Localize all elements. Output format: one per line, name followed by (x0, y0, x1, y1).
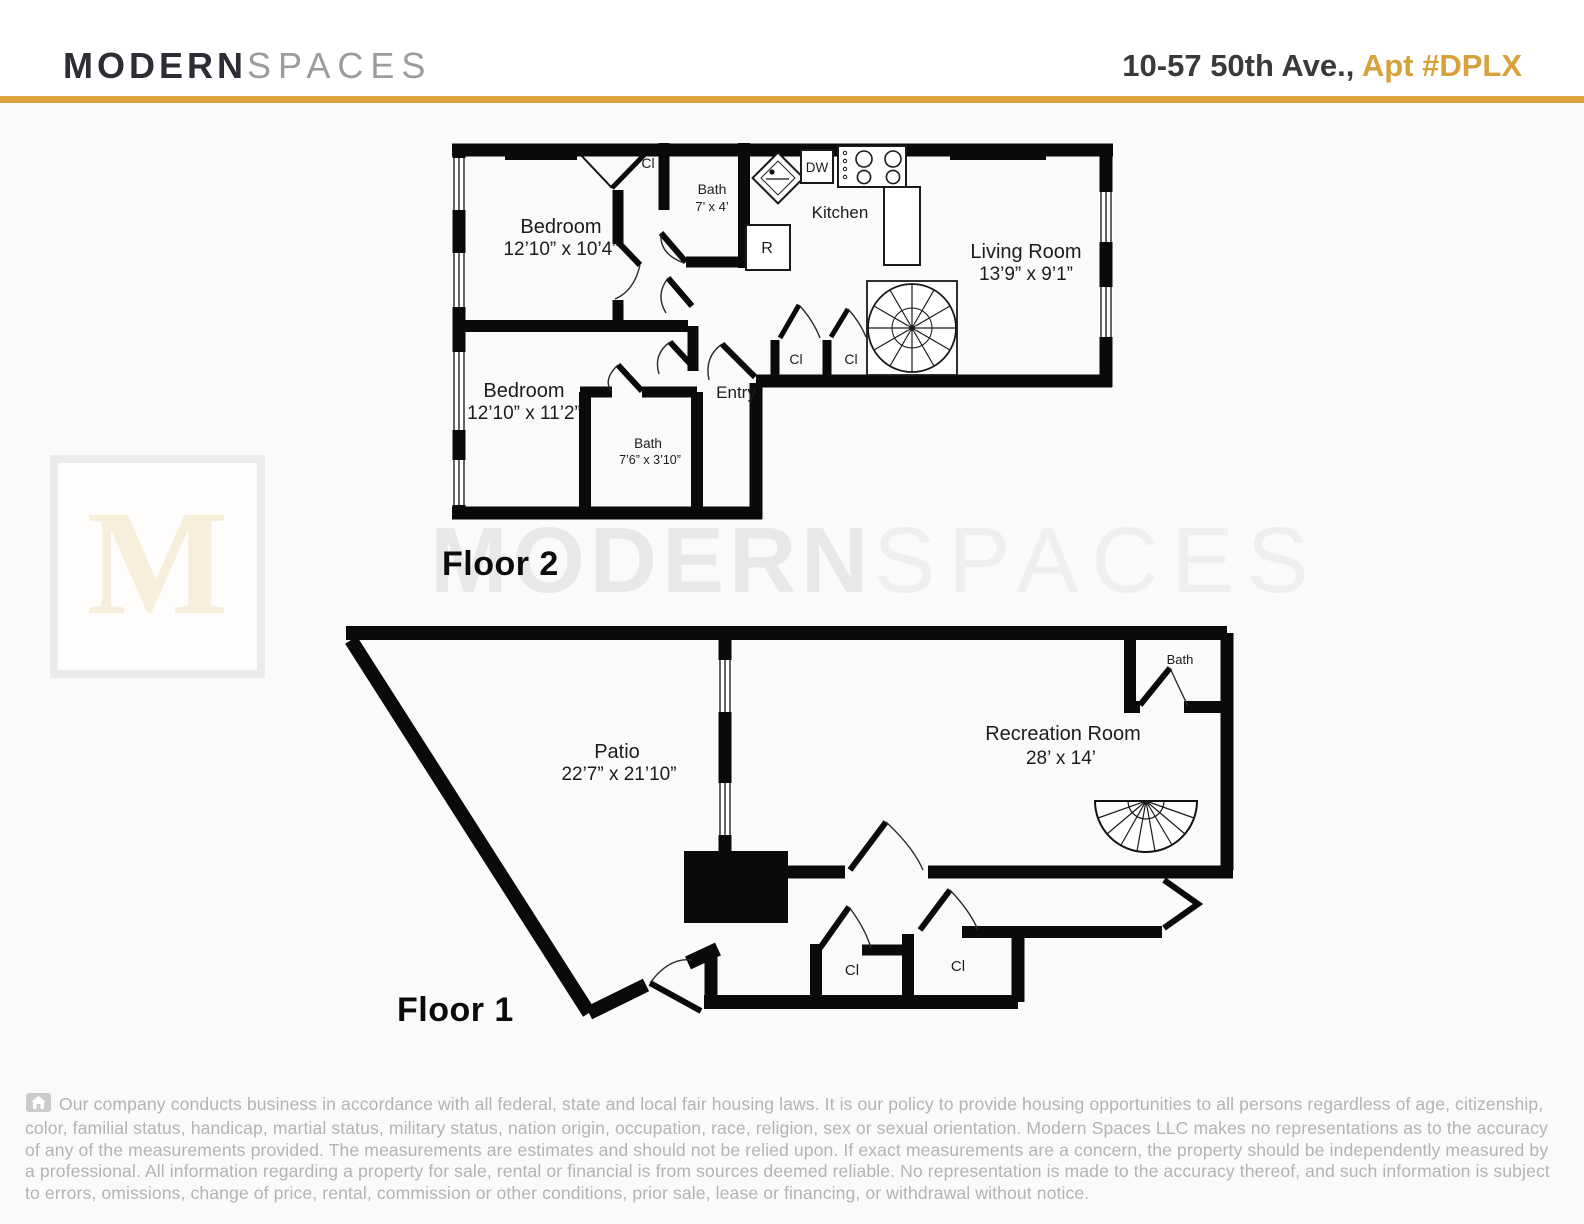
floor2-kitchen-label: Kitchen (812, 203, 869, 222)
address-text: 10-57 50th Ave., (1122, 48, 1362, 83)
floor2-bath1-dims: 7’ x 4’ (695, 199, 729, 214)
brand-bold: MODERN (63, 45, 247, 86)
floor1-patio-dims: 22’7” x 21’10” (561, 764, 676, 785)
floor2-fridge-label: R (761, 240, 773, 257)
floor2-dw-label: DW (806, 160, 829, 175)
stair-fan-icon (1095, 801, 1197, 852)
floor2-closet1-label: Cl (789, 351, 802, 367)
floor2-bedroom2-dims: 12’10” x 11’2” (467, 403, 581, 424)
floor2-bedroom1-dims: 12’10” x 10’4” (503, 239, 618, 260)
equal-housing-icon (25, 1092, 52, 1119)
unit-text: Apt #DPLX (1362, 48, 1522, 83)
floor1-closet1-label: Cl (845, 962, 859, 979)
floor2-entry-label: Entry (716, 383, 756, 402)
floor2-bath1-name: Bath (698, 181, 727, 197)
sink-icon (753, 153, 804, 204)
floor1-closet2-label: Cl (951, 958, 965, 975)
brand-logo: MODERNSPACES (63, 44, 432, 88)
floor2-bath2-name: Bath (634, 436, 662, 451)
floor2-title: Floor 2 (442, 545, 559, 584)
floor2-closet2-label: Cl (844, 351, 857, 367)
disclaimer: Our company conducts business in accorda… (25, 1092, 1560, 1205)
floor2-bedroom2-name: Bedroom (483, 380, 564, 402)
floor1-rec-dims: 28’ x 14’ (1026, 748, 1096, 769)
floor1-bath-label: Bath (1167, 652, 1194, 667)
stove-icon (838, 146, 906, 187)
floor1-rec-name: Recreation Room (985, 723, 1141, 745)
kitchen-counter (884, 187, 920, 265)
watermark-logo-box: M (50, 455, 265, 678)
brand-light: SPACES (247, 45, 432, 86)
page-title: 10-57 50th Ave., Apt #DPLX (1122, 48, 1522, 84)
floor1-plan: Patio 22’7” x 21’10” Recreation Room 28’… (335, 600, 1250, 1030)
disclaimer-text: Our company conducts business in accorda… (25, 1094, 1550, 1203)
floor2-living-name: Living Room (970, 241, 1081, 263)
floorplan-page: MODERNSPACES 10-57 50th Ave., Apt #DPLX … (0, 0, 1584, 1224)
gold-divider-rule (0, 96, 1584, 103)
floor2-bedroom1-name: Bedroom (520, 216, 601, 238)
floor2-living-dims: 13’9” x 9’1” (979, 264, 1073, 285)
floor2-plan: Bedroom 12’10” x 10’4” Cl Bath 7’ x 4’ D… (445, 130, 1120, 535)
floor1-patio-name: Patio (594, 741, 640, 763)
floor1-title: Floor 1 (397, 991, 514, 1030)
floor2-bath2-dims: 7’6” x 3’10” (619, 453, 681, 467)
floor2-closet-label: Cl (641, 155, 654, 171)
spiral-staircase-icon (867, 281, 957, 375)
watermark-letter: M (87, 480, 229, 646)
